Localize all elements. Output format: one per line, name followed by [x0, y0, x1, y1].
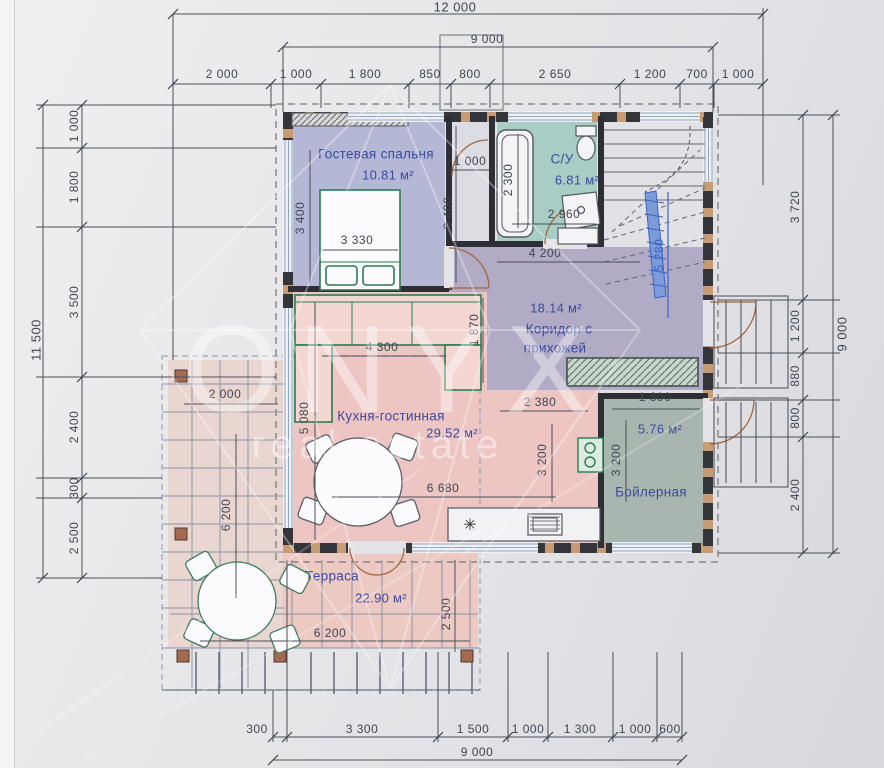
watermark-tagline: real estate [252, 423, 505, 467]
floor-plan-canvas: ✳ [0, 0, 884, 768]
watermark: ONYX real estate [0, 0, 884, 768]
watermark-brand: ONYX [183, 301, 606, 439]
